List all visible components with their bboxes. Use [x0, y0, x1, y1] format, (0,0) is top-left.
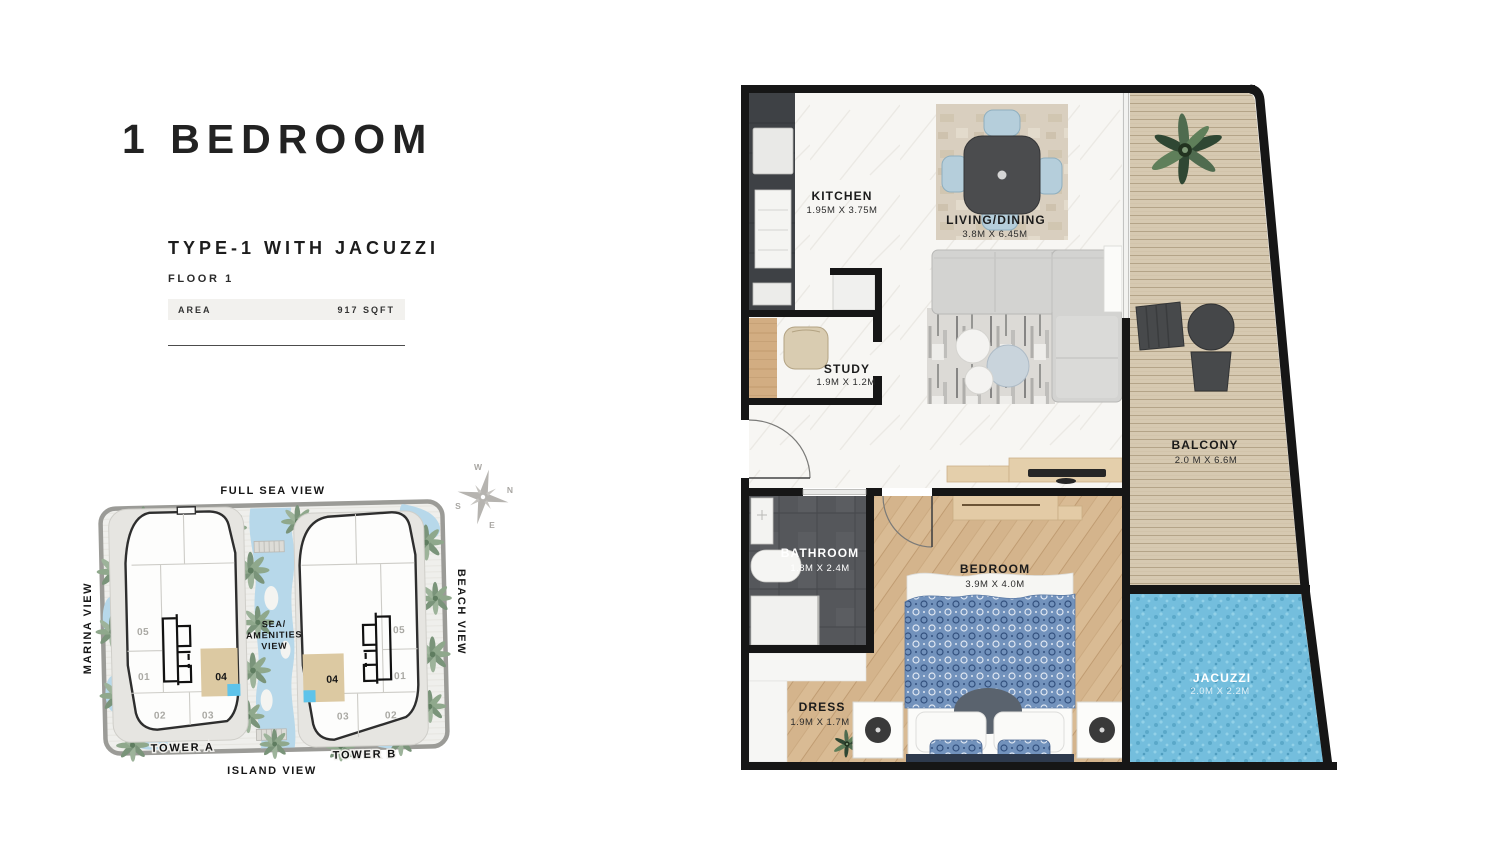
bathroom-sliding-door	[803, 490, 866, 495]
tower-a-unit-03: 03	[202, 710, 214, 721]
bedroom-label: BEDROOM	[960, 562, 1030, 576]
floor-label: FLOOR 1	[168, 273, 234, 285]
svg-text:AMENITIES: AMENITIES	[246, 629, 302, 640]
tower-a-unit-05: 05	[137, 627, 149, 638]
view-label-right: BEACH VIEW	[455, 569, 467, 655]
tower-b-unit-02: 02	[385, 710, 397, 721]
study-chair	[784, 327, 828, 369]
tower-a-unit-02: 02	[154, 710, 166, 721]
bathroom-label: BATHROOM	[781, 546, 860, 560]
tower-b-label: TOWER B	[333, 748, 398, 761]
study-dims: 1.9M X 1.2M	[816, 377, 875, 388]
site-key-plan: 05 01 02 03 04 TOWER A 05	[70, 445, 515, 790]
wardrobe	[953, 494, 1058, 520]
living-dining-dims: 3.8M X 6.45M	[962, 229, 1027, 240]
tower-b-unit-03: 03	[337, 711, 349, 722]
area-bar: AREA 917 SQFT	[168, 299, 405, 320]
tower-a: 05 01 02 03 04 TOWER A	[108, 506, 249, 756]
site-plot: 05 01 02 03 04 TOWER A 05	[93, 499, 456, 767]
tower-b-unit-05: 05	[393, 625, 405, 636]
unit-type-subtitle: TYPE-1 WITH JACUZZI	[168, 238, 439, 259]
svg-text:VIEW: VIEW	[261, 641, 287, 652]
kitchen-label: KITCHEN	[811, 189, 872, 203]
area-value: 917 SQFT	[337, 305, 395, 315]
jacuzzi-dims: 2.0M X 2.2M	[1190, 686, 1249, 697]
apartment-floor-plan: KITCHEN 1.95M X 3.75M LIVING/DINING 3.8M…	[738, 78, 1346, 778]
dress-label: DRESS	[799, 700, 846, 714]
kitchen-dims: 1.95M X 3.75M	[807, 205, 878, 216]
balcony-glass-wall	[1122, 93, 1130, 318]
tower-a-unit-04-marker	[227, 684, 240, 696]
tower-a-unit-04: 04	[215, 671, 227, 683]
living-dining-label: LIVING/DINING	[946, 213, 1046, 227]
tower-b-unit-04: 04	[326, 674, 338, 686]
floor-plan-page: { "left_panel": { "title": "1 BEDROOM", …	[0, 0, 1500, 854]
tower-a-label: TOWER A	[151, 741, 215, 754]
area-label: AREA	[178, 305, 212, 315]
coffee-table	[965, 366, 993, 394]
dress-dims: 1.9M X 1.7M	[790, 717, 849, 728]
page-title: 1 BEDROOM	[122, 116, 433, 163]
view-label-top: FULL SEA VIEW	[220, 485, 325, 497]
study-label: STUDY	[824, 362, 870, 376]
window-ledge	[1104, 246, 1122, 312]
view-label-bottom: ISLAND VIEW	[227, 765, 317, 777]
view-label-left: MARINA VIEW	[82, 582, 94, 674]
compass-s: S	[455, 501, 461, 511]
balcony-chair	[1191, 352, 1231, 391]
bedroom-dims: 3.9M X 4.0M	[965, 579, 1024, 590]
jacuzzi-label: JACUZZI	[1193, 671, 1251, 685]
tower-a-unit-01: 01	[138, 672, 150, 683]
balcony-label: BALCONY	[1171, 438, 1238, 452]
bed	[905, 573, 1075, 764]
compass-e: E	[489, 520, 495, 530]
bathroom-sink	[751, 498, 773, 544]
tv	[1028, 469, 1106, 477]
svg-text:SEA/: SEA/	[262, 619, 286, 630]
compass-w: W	[474, 462, 483, 472]
balcony-table	[1188, 304, 1234, 350]
divider-line	[168, 345, 405, 346]
balcony-dims: 2.0 M X 6.6M	[1175, 455, 1238, 466]
compass-n: N	[507, 485, 513, 495]
study-desk	[749, 318, 777, 398]
compass-rose-icon: W N S E	[452, 462, 515, 530]
tower-b: 05 01 03 02 04 TOWER B	[293, 511, 429, 763]
shower	[751, 596, 819, 645]
dress-closet	[749, 681, 787, 762]
balcony-lounge-chair	[1136, 302, 1184, 350]
coffee-table	[956, 329, 990, 363]
dress-closet	[749, 653, 866, 681]
bathroom-dims: 1.8M X 2.4M	[790, 563, 849, 574]
tower-b-unit-01: 01	[394, 671, 406, 682]
tower-b-unit-04-marker	[303, 690, 315, 702]
